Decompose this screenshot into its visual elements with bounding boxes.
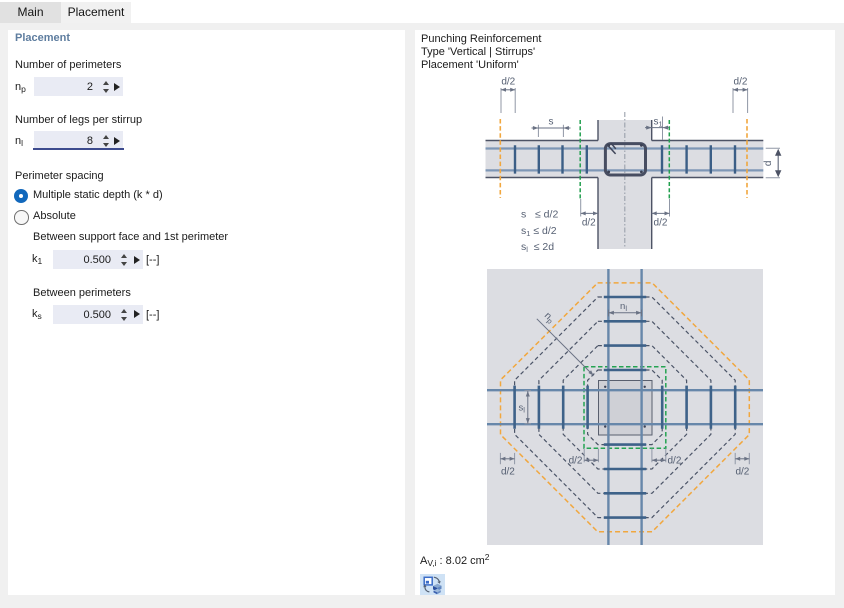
svg-text:d/2: d/2 (654, 218, 668, 229)
svg-text:d/2: d/2 (569, 456, 583, 467)
svg-text:d/2: d/2 (582, 218, 596, 229)
svg-text:d/2: d/2 (734, 77, 748, 88)
svg-text:d/2: d/2 (668, 456, 682, 467)
svg-text:d: d (763, 161, 774, 167)
svg-text:s1 ≤ d/2: s1 ≤ d/2 (521, 225, 557, 238)
svg-text:sl ≤ 2d: sl ≤ 2d (521, 241, 554, 254)
svg-text:d/2: d/2 (501, 466, 515, 477)
svg-text:s1: s1 (654, 117, 663, 129)
svg-text:s: s (549, 117, 554, 128)
svg-text:d/2: d/2 (735, 466, 749, 477)
svg-text:d/2: d/2 (501, 77, 515, 88)
svg-text:s ≤ d/2: s ≤ d/2 (521, 209, 558, 221)
